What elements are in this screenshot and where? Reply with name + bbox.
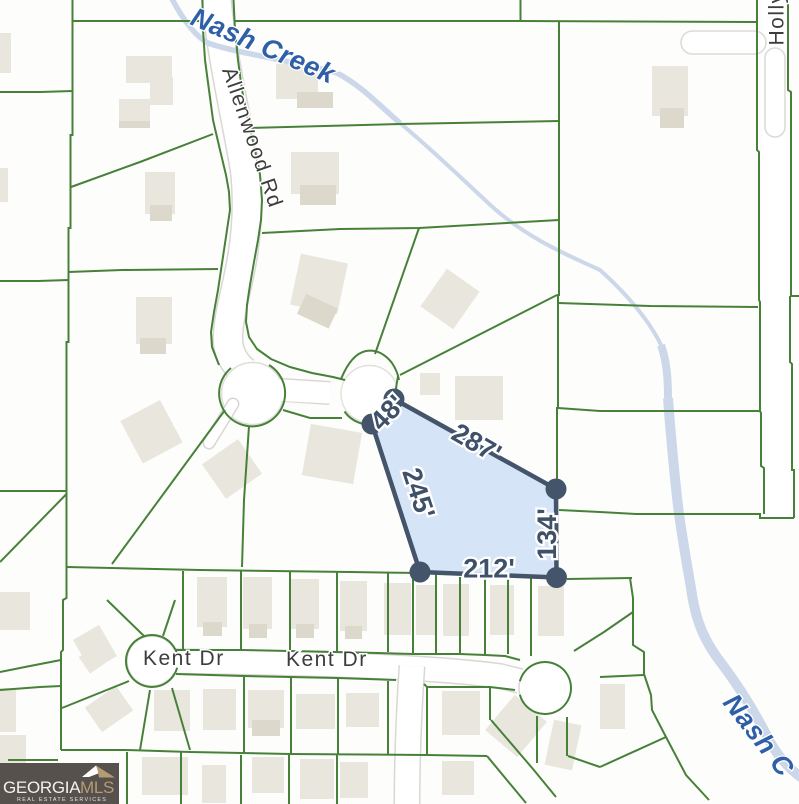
svg-text:212': 212' [463, 554, 514, 584]
svg-text:GEORGIA: GEORGIA [3, 778, 81, 797]
svg-text:MLS: MLS [80, 778, 114, 797]
svg-text:134': 134' [532, 508, 562, 559]
svg-text:REAL ESTATE SERVICES: REAL ESTATE SERVICES [17, 797, 107, 803]
svg-text:Kent Dr: Kent Dr [143, 647, 225, 670]
svg-text:Hollyberry: Hollyberry [766, 0, 789, 46]
svg-text:Kent Dr: Kent Dr [286, 648, 368, 671]
